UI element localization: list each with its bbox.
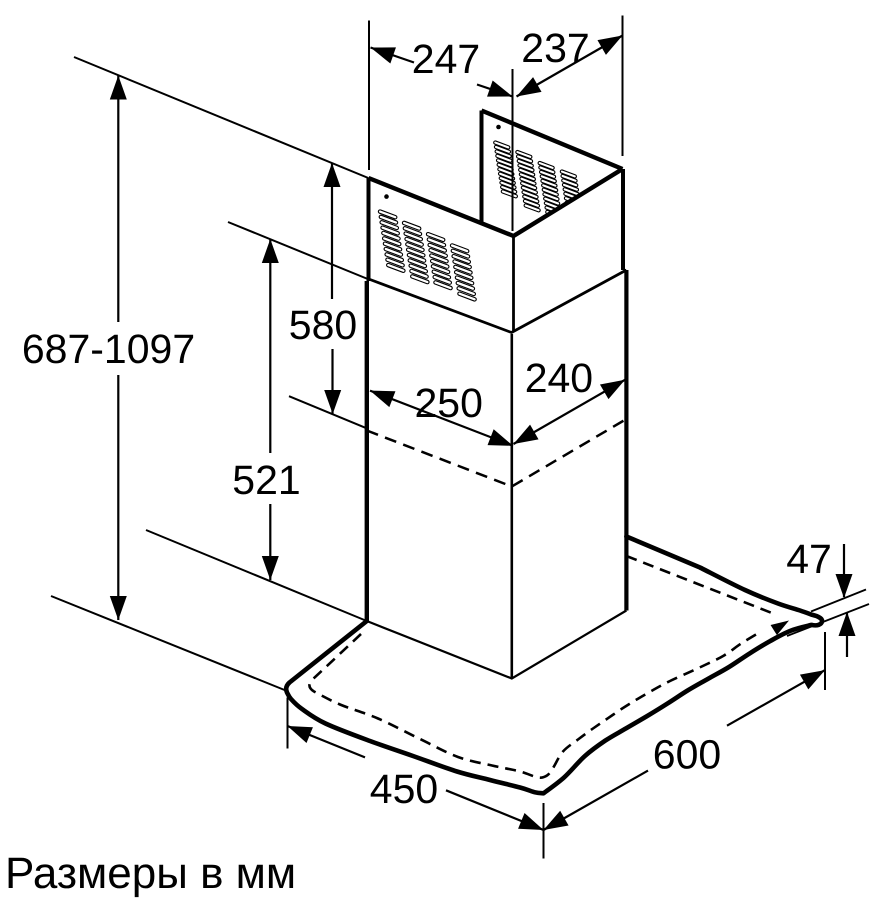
svg-text:250: 250 [414, 380, 482, 426]
svg-text:521: 521 [232, 457, 300, 503]
svg-text:600: 600 [653, 732, 721, 778]
svg-text:450: 450 [370, 766, 438, 812]
svg-text:247: 247 [412, 36, 480, 82]
svg-text:Размеры в мм: Размеры в мм [5, 849, 296, 898]
svg-text:47: 47 [786, 536, 832, 582]
svg-text:580: 580 [289, 302, 357, 348]
svg-text:687-1097: 687-1097 [22, 326, 195, 372]
svg-text:240: 240 [525, 355, 593, 401]
svg-text:237: 237 [521, 25, 589, 71]
